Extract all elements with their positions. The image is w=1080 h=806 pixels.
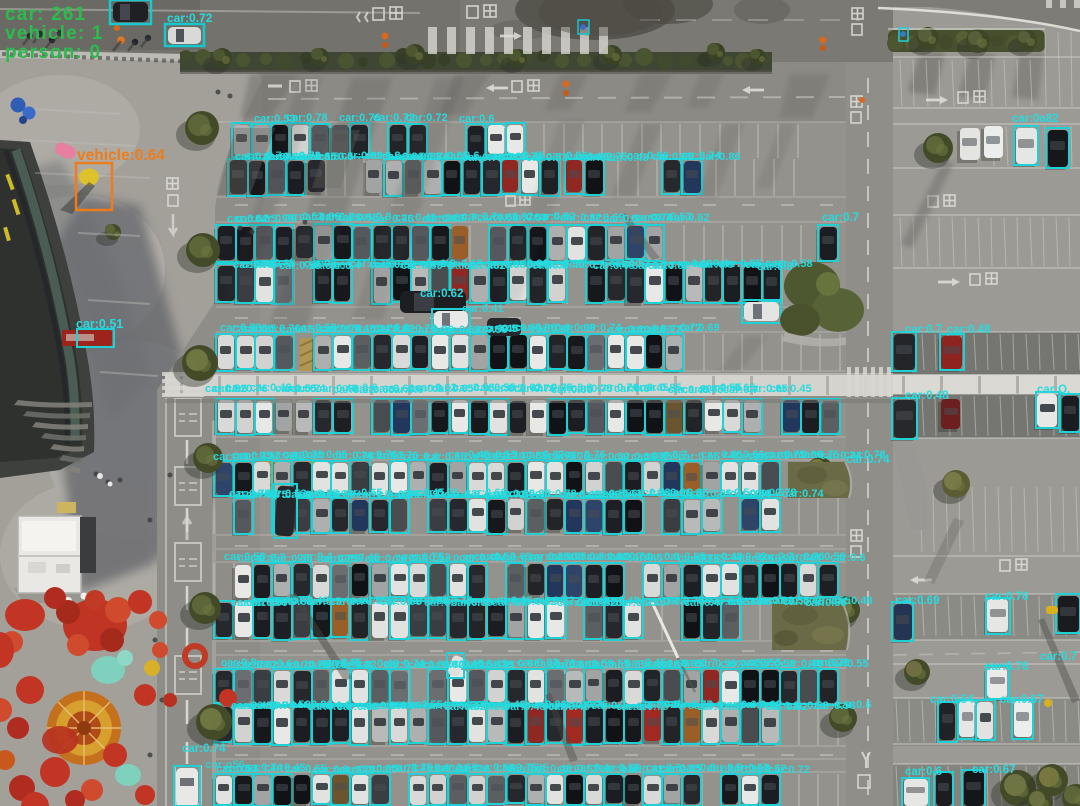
svg-text:car:0.58: car:0.58 (771, 258, 813, 270)
svg-text:car:0.8: car:0.8 (812, 657, 847, 669)
svg-text:car:0.7: car:0.7 (822, 212, 859, 224)
svg-text:car:0.75: car:0.75 (535, 450, 577, 462)
svg-text:car:0.67: car:0.67 (1000, 694, 1043, 706)
svg-text:car:0.45: car:0.45 (231, 450, 273, 462)
svg-text:car:0.6: car:0.6 (342, 382, 377, 394)
svg-text:car:0.65: car:0.65 (400, 151, 442, 163)
svg-text:car:0.6: car:0.6 (459, 113, 494, 125)
svg-text:car:0.75: car:0.75 (684, 553, 726, 565)
svg-text:car:0.6: car:0.6 (654, 596, 689, 608)
svg-text:car:0.55: car:0.55 (321, 553, 363, 565)
svg-text:car:0.75: car:0.75 (369, 259, 411, 271)
svg-text:car:0.45: car:0.45 (604, 551, 646, 563)
svg-text:car:0.7: car:0.7 (905, 324, 942, 336)
svg-text:car:0.51: car:0.51 (76, 317, 123, 331)
svg-text:cor:o56: cor:o56 (205, 759, 245, 771)
svg-text:car:0.8: car:0.8 (532, 260, 567, 272)
svg-text:car:0.55: car:0.55 (235, 213, 277, 225)
svg-text:car:0.6: car:0.6 (836, 699, 871, 711)
svg-text:car:0.55: car:0.55 (809, 595, 851, 607)
svg-text:car:0.45: car:0.45 (466, 658, 508, 670)
svg-text:car:0.7: car:0.7 (424, 597, 459, 609)
svg-text:car:0.69: car:0.69 (678, 322, 720, 334)
svg-text:car:0.55: car:0.55 (297, 488, 339, 500)
svg-text:car:0.55: car:0.55 (475, 449, 517, 461)
svg-text:car:0.45: car:0.45 (428, 763, 470, 775)
svg-text:car:0.65: car:0.65 (237, 597, 279, 609)
svg-text:car:0.72: car:0.72 (167, 11, 213, 25)
svg-text:car:Q.: car:Q. (1037, 384, 1070, 396)
svg-text:car:0.8: car:0.8 (241, 259, 276, 271)
svg-text:car:0.45: car:0.45 (663, 488, 705, 500)
svg-text:car:0.55: car:0.55 (589, 488, 631, 500)
svg-text:car:0.55: car:0.55 (237, 700, 279, 712)
svg-text:car:0.8: car:0.8 (533, 211, 568, 223)
svg-text:car:0.45: car:0.45 (503, 150, 545, 162)
svg-text:car:0.48: car:0.48 (947, 324, 991, 336)
svg-text:car:0.45: car:0.45 (556, 659, 598, 671)
svg-text:car:0.55: car:0.55 (643, 450, 685, 462)
svg-text:car:0.6: car:0.6 (580, 152, 615, 164)
svg-text:car:0.6: car:0.6 (830, 552, 865, 564)
svg-text:car:0.67: car:0.67 (972, 764, 1015, 776)
svg-text:car:0.7: car:0.7 (546, 551, 581, 563)
svg-text:car:0.45: car:0.45 (477, 323, 519, 335)
svg-text:car:0.7: car:0.7 (688, 700, 723, 712)
svg-text:person: 0: person: 0 (5, 42, 101, 63)
svg-text:car:0.8: car:0.8 (764, 700, 799, 712)
svg-text:car:0.45: car:0.45 (770, 383, 812, 395)
svg-text:car:0.62: car:0.62 (420, 288, 463, 300)
svg-text:car:0.55: car:0.55 (659, 763, 701, 775)
svg-text:car:0.6: car:0.6 (749, 487, 784, 499)
svg-text:car:0.75: car:0.75 (334, 764, 376, 776)
svg-text:car:0.6: car:0.6 (316, 323, 351, 335)
svg-text:car:0.65: car:0.65 (490, 551, 532, 563)
svg-text:car:0.7: car:0.7 (492, 597, 527, 609)
svg-text:car:0.86: car:0.86 (699, 151, 741, 163)
svg-text:car:0.7: car:0.7 (290, 451, 325, 463)
svg-text:car:0.65: car:0.65 (714, 382, 756, 394)
svg-text:car:0.76: car:0.76 (985, 661, 1028, 673)
svg-text:car:0.8: car:0.8 (631, 323, 666, 335)
svg-text:car:0.6: car:0.6 (370, 450, 405, 462)
svg-text:car:0.8: car:0.8 (371, 700, 406, 712)
svg-text:car:0.55: car:0.55 (237, 488, 279, 500)
svg-text:car:0.78: car:0.78 (286, 112, 328, 124)
svg-text:vehicle: 1: vehicle: 1 (5, 23, 104, 44)
svg-text:car:0.7: car:0.7 (449, 260, 484, 272)
svg-text:car:0.6: car:0.6 (733, 451, 768, 463)
svg-text:car:0.8: car:0.8 (374, 322, 409, 334)
svg-text:car:0.48: car:0.48 (905, 390, 949, 402)
svg-text:car:0.74: car:0.74 (782, 488, 824, 500)
svg-text:car:0.74: car:0.74 (846, 454, 890, 466)
svg-text:car:0.65: car:0.65 (507, 762, 549, 774)
svg-text:car: 261: car: 261 (5, 4, 86, 25)
svg-text:car:0.8: car:0.8 (322, 657, 357, 669)
svg-text:car:0.69: car:0.69 (896, 595, 939, 607)
svg-text:car:0.8: car:0.8 (735, 657, 770, 669)
svg-text:car:0.74: car:0.74 (182, 743, 226, 755)
svg-text:car:0.6: car:0.6 (212, 383, 247, 395)
svg-text:car:0.45: car:0.45 (238, 553, 280, 565)
svg-text:car:0.55: car:0.55 (598, 762, 640, 774)
svg-text:car:0.55: car:0.55 (346, 595, 388, 607)
svg-text:car:0.54: car:0.54 (930, 694, 974, 706)
svg-text:car:0.76: car:0.76 (985, 591, 1028, 603)
svg-text:car:0.8: car:0.8 (425, 212, 460, 224)
svg-text:car:0.7: car:0.7 (615, 258, 650, 270)
svg-text:car:0.45: car:0.45 (627, 382, 669, 394)
svg-text:car:0.55: car:0.55 (397, 489, 439, 501)
svg-text:car:0.7: car:0.7 (246, 150, 281, 162)
svg-text:car:0.7: car:0.7 (488, 383, 523, 395)
svg-text:car:0.75: car:0.75 (730, 596, 772, 608)
svg-text:car:0.6: car:0.6 (905, 766, 942, 778)
svg-text:car:0.6: car:0.6 (307, 701, 342, 713)
svg-text:car:0.6: car:0.6 (407, 383, 442, 395)
svg-text:car:0a82: car:0a82 (1012, 113, 1059, 125)
svg-text:vehicle:0.64: vehicle:0.64 (77, 147, 165, 164)
svg-text:car:0.8: car:0.8 (557, 382, 592, 394)
svg-text:car:0.8: car:0.8 (304, 151, 339, 163)
svg-text:car:0.75: car:0.75 (627, 701, 669, 713)
svg-text:car:0.45: car:0.45 (384, 659, 426, 671)
svg-text:car:0.62: car:0.62 (668, 212, 710, 224)
svg-text:car:0.72: car:0.72 (768, 764, 810, 776)
svg-text:car:0.72: car:0.72 (406, 112, 448, 124)
svg-text:car:0.7: car:0.7 (1040, 651, 1077, 663)
svg-text:car:0.65: car:0.65 (310, 260, 352, 272)
svg-text:car:0.75: car:0.75 (721, 764, 763, 776)
svg-text:car:0.75: car:0.75 (402, 551, 444, 563)
svg-text:car:0.65: car:0.65 (493, 488, 535, 500)
svg-text:car:0.45: car:0.45 (779, 553, 821, 565)
svg-text:car:0.8: car:0.8 (645, 659, 680, 671)
svg-text:car:0.65: car:0.65 (224, 659, 266, 671)
svg-text:car:0.8: car:0.8 (535, 322, 570, 334)
svg-text:car:0.45: car:0.45 (468, 700, 510, 712)
svg-text:car:0.7: car:0.7 (285, 383, 320, 395)
svg-text:car:0.55: car:0.55 (319, 212, 361, 224)
svg-text:car:0.7: car:0.7 (635, 212, 670, 224)
svg-text:car:0.45: car:0.45 (583, 597, 625, 609)
svg-text:car:0.45: car:0.45 (232, 323, 274, 335)
svg-text:car:0.8: car:0.8 (698, 259, 733, 271)
svg-text:car:0.8: car:0.8 (543, 700, 578, 712)
